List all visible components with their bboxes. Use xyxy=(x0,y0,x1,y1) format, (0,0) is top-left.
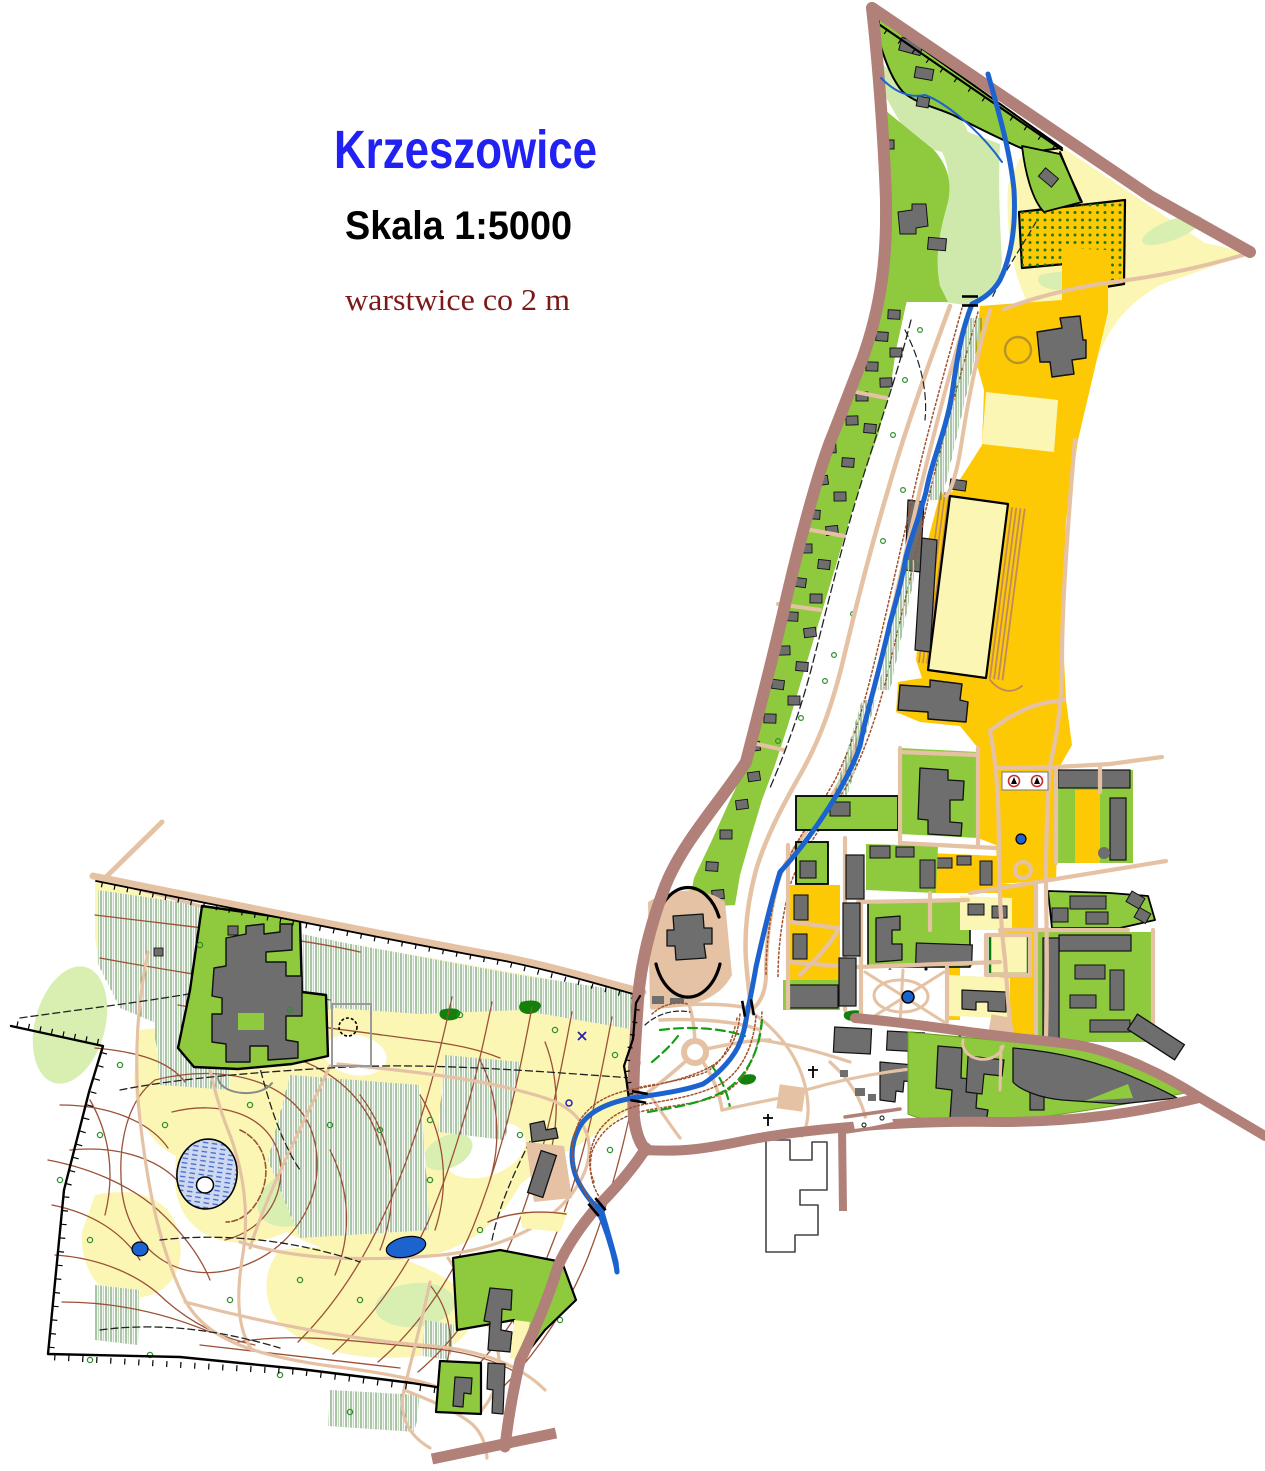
svg-text:Skala 1:5000: Skala 1:5000 xyxy=(345,204,572,248)
svg-text:warstwice co 2 m: warstwice co 2 m xyxy=(345,282,570,317)
svg-text:Krzeszowice: Krzeszowice xyxy=(334,120,597,180)
